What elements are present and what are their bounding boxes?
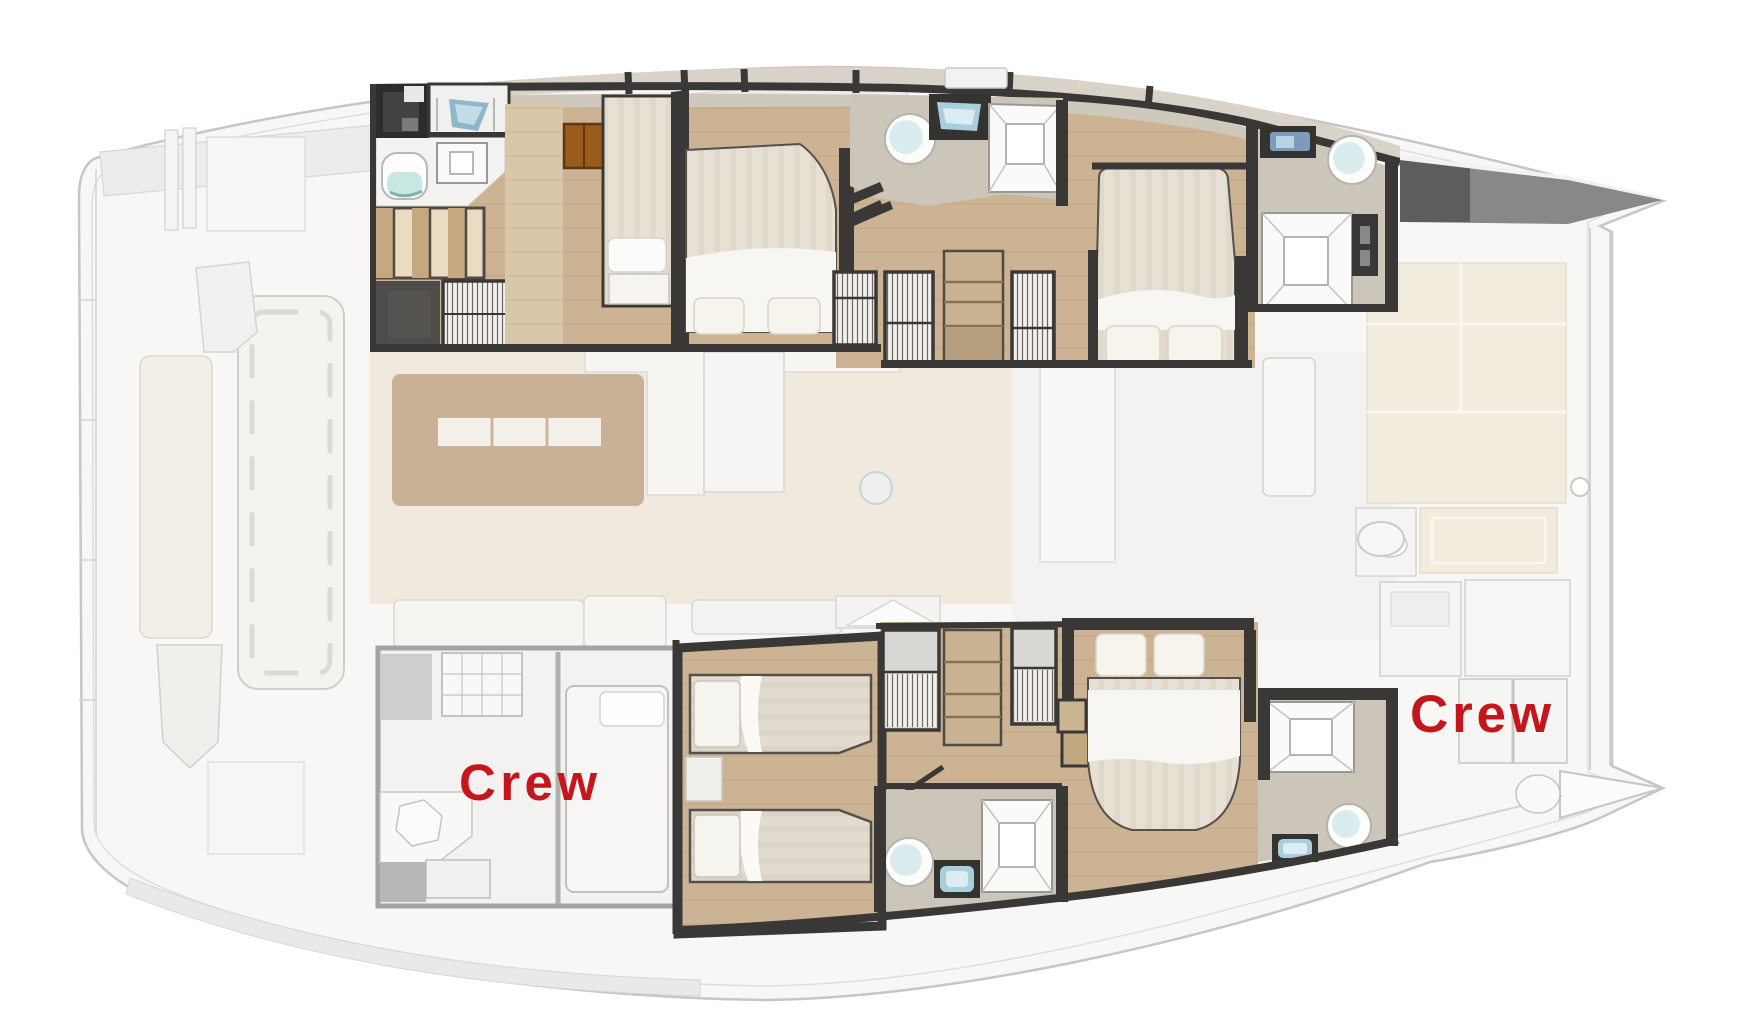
svg-text:Crew: Crew bbox=[459, 754, 597, 811]
svg-text:Crew: Crew bbox=[1410, 685, 1552, 744]
